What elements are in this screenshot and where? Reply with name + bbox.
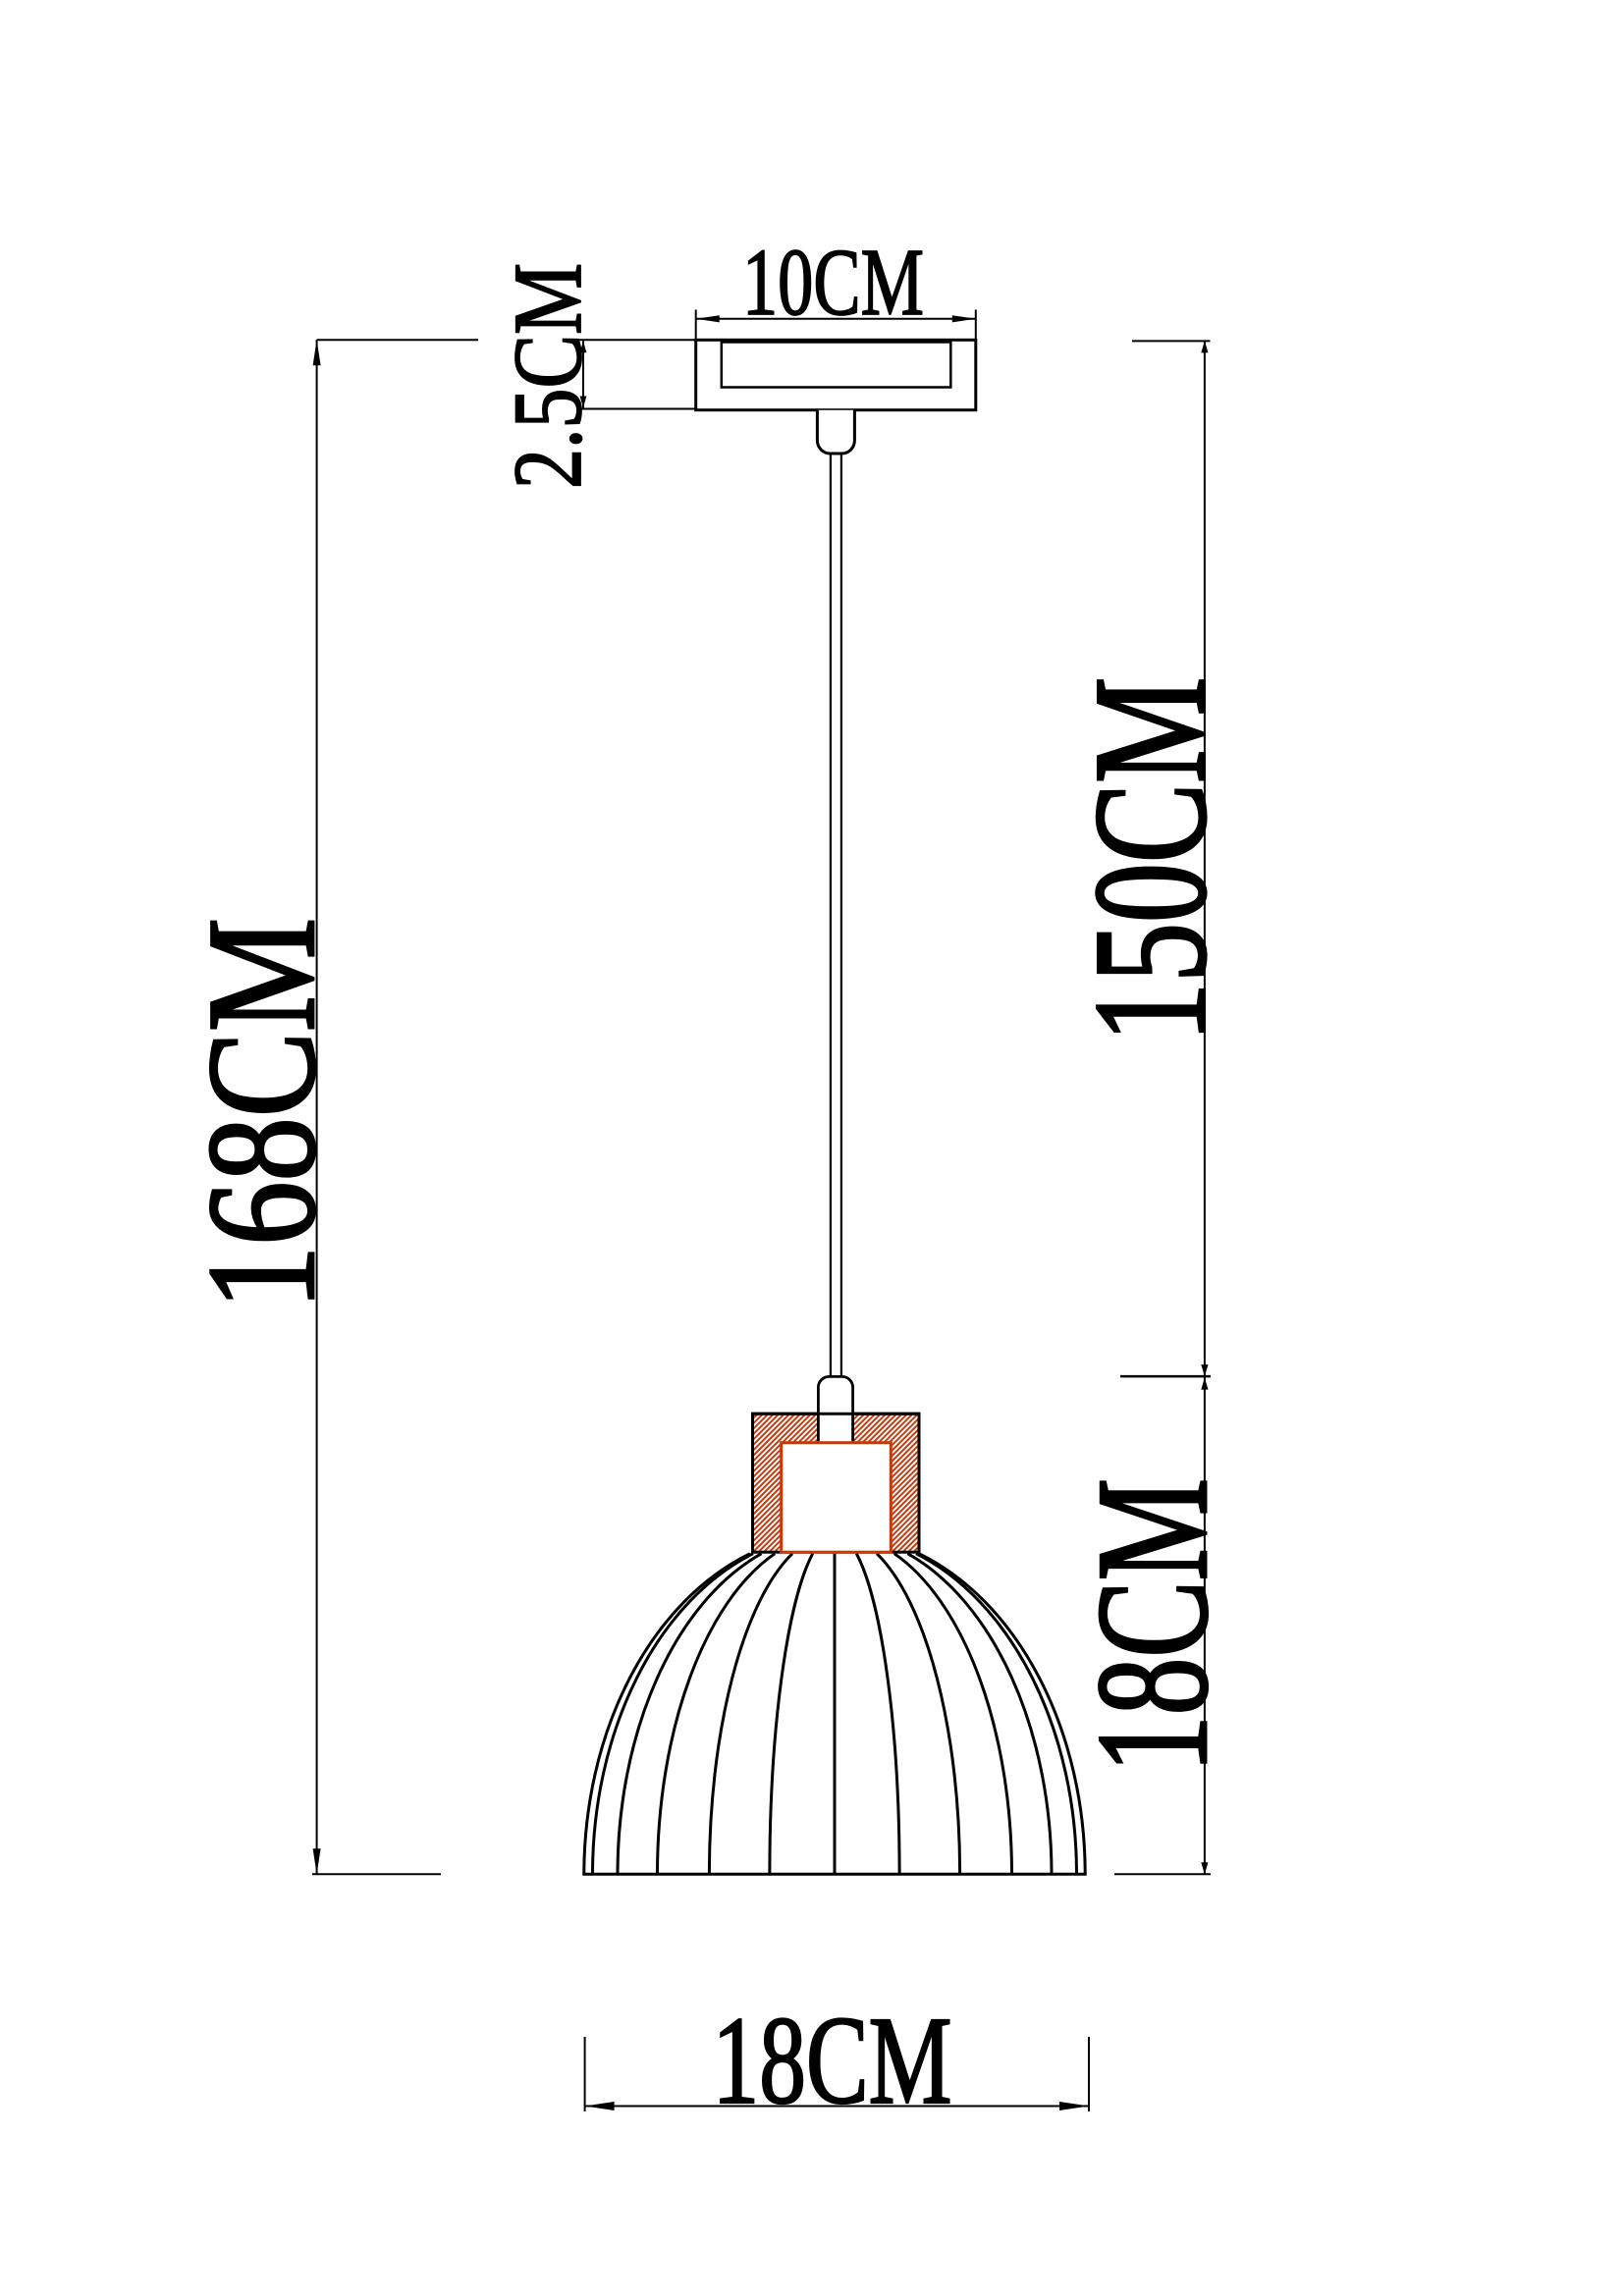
svg-text:168CM: 168CM bbox=[176, 918, 348, 1309]
svg-text:150CM: 150CM bbox=[1060, 677, 1240, 1042]
svg-text:10CM: 10CM bbox=[742, 230, 924, 336]
svg-text:2.5CM: 2.5CM bbox=[493, 263, 602, 489]
svg-text:18CM: 18CM bbox=[1064, 1478, 1241, 1773]
svg-text:18CM: 18CM bbox=[713, 1991, 952, 2130]
